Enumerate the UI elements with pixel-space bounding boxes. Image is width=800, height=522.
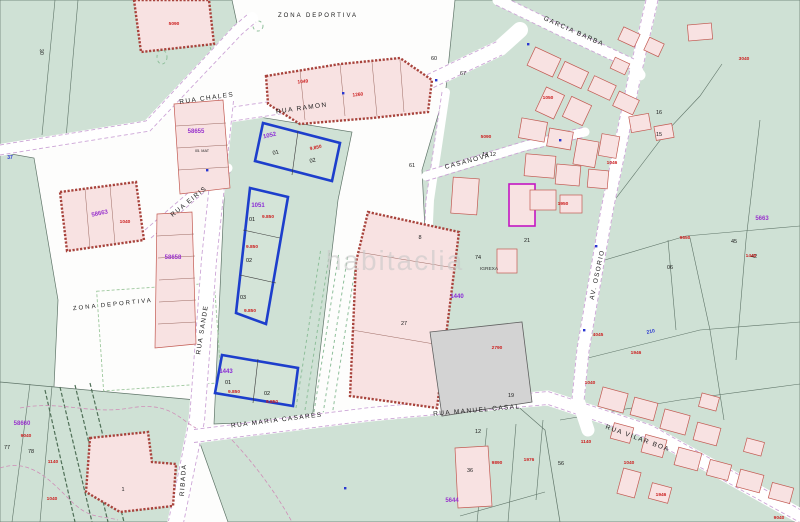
area-value: 1260 (352, 91, 364, 98)
area-value: 1946 (656, 492, 667, 498)
cadastral-id: 58660 (14, 421, 31, 427)
area-value: 9.850 (266, 399, 278, 405)
area-value: 1976 (524, 457, 535, 463)
parcel-number: 06 (667, 265, 673, 271)
cadastral-map[interactable]: ZONA DEPORTIVA ZONA DEPORTIVA RUA CHALES… (0, 0, 800, 522)
unit-label: 02 (264, 391, 270, 397)
parcel-number: 16 (656, 110, 662, 116)
building (174, 100, 230, 194)
building (629, 113, 651, 132)
map-canvas: ZONA DEPORTIVA ZONA DEPORTIVA RUA CHALES… (0, 0, 800, 522)
area-value: 1046 (607, 160, 618, 166)
parcel-number: 1 (121, 487, 124, 493)
parcel-number: 27 (401, 321, 407, 327)
area-value: 5090 (169, 21, 180, 27)
blue-mark: 37 (7, 155, 13, 161)
parcel-number: 74 (475, 255, 481, 261)
area-value: 9040 (21, 433, 32, 439)
area-value: 1040 (120, 219, 131, 225)
area-value: 9.850 (246, 244, 258, 250)
building (266, 58, 432, 124)
cadastral-id: 58658 (165, 255, 182, 261)
parcel-number: 60 (431, 56, 437, 62)
parcel-number: 36 (467, 468, 473, 474)
parcel-number: 78 (28, 449, 34, 455)
parcel-number: 77 (4, 445, 10, 451)
unit-label: 01 (225, 380, 231, 386)
cadastral-id: 58655 (188, 129, 205, 135)
area-value: 5090 (481, 134, 492, 140)
building (518, 118, 547, 142)
building (555, 164, 581, 186)
parcel-id: 1051 (251, 203, 265, 209)
parcel-id: 1443 (219, 369, 233, 375)
area-value: 4045 (593, 332, 604, 338)
area-value: 9.850 (244, 308, 256, 314)
parcel-number: 19 (508, 393, 514, 399)
cadastral-id: 5663 (755, 216, 769, 222)
place-label: IGREXA (480, 266, 499, 272)
area-value: 1440 (746, 253, 757, 259)
area-value: 1140 (48, 459, 59, 465)
area-value: 1140 (581, 439, 592, 445)
building (451, 177, 479, 215)
parcel-number: 15 (656, 132, 662, 138)
area-value: 9040 (774, 515, 785, 521)
building (587, 169, 608, 189)
area-value: 1050 (543, 95, 554, 101)
church-building (497, 249, 517, 273)
parcel-number: 14 12 (482, 152, 496, 158)
area-value: 9890 (492, 460, 503, 466)
parcel-number: 67 (460, 71, 466, 77)
parcel-number: 12 (475, 429, 481, 435)
zone-label: ZONA DEPORTIVA (278, 13, 358, 19)
area-value: 3040 (739, 56, 750, 62)
building (455, 446, 492, 508)
building (598, 134, 620, 159)
building-annotation: 05. MAT (195, 149, 210, 153)
area-value: 1040 (47, 496, 58, 502)
unit-label: 01 (249, 217, 255, 223)
unit-label: 03 (240, 295, 246, 301)
area-value: 9.850 (228, 389, 240, 395)
unit-label: 02 (246, 258, 252, 264)
building (573, 138, 599, 167)
parcel-number: 56 (558, 461, 564, 467)
building (687, 23, 712, 41)
watermark: habitaclia (326, 245, 464, 276)
parcel-number: 8 (418, 235, 421, 241)
parcel-number: 30 (38, 49, 45, 56)
building (530, 190, 556, 210)
area-value: 9.850 (262, 214, 274, 220)
gray-parcel (430, 322, 532, 416)
area-value: 1040 (585, 380, 596, 386)
parcel-number: 21 (524, 238, 530, 244)
parcel-id: 1440 (450, 294, 464, 300)
area-value: 9650 (680, 235, 691, 241)
parcel-number: 45 (731, 239, 737, 245)
building (524, 154, 556, 179)
area-value: 1950 (558, 201, 569, 207)
area-value: 1946 (631, 350, 642, 356)
area-value: 1040 (624, 460, 635, 466)
cadastral-id: 5644 (445, 498, 459, 504)
area-value: 2790 (492, 345, 503, 351)
area-value: 1049 (297, 78, 309, 85)
parcel-number: 61 (409, 163, 415, 169)
zone-label: ZONA DEPORTIVA (73, 298, 153, 312)
